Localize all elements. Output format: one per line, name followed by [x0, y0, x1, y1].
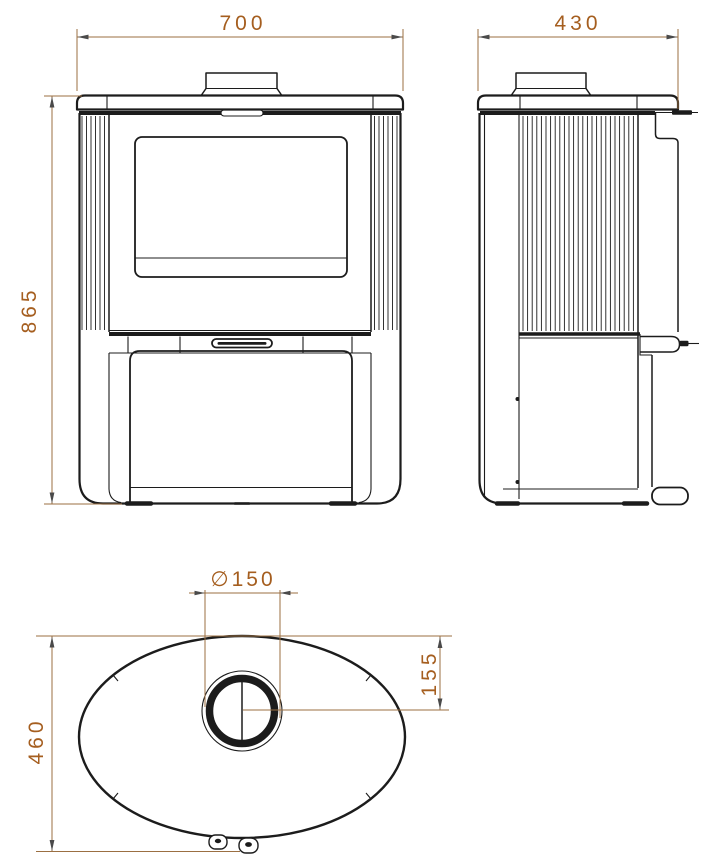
top-plate-side: [478, 96, 678, 114]
ash-door: [127, 351, 355, 504]
glass-window: [135, 137, 347, 277]
dim-label-460: 460: [25, 717, 48, 764]
front-view: [77, 73, 403, 504]
top-view: [79, 636, 405, 853]
dim-label-flue-diameter: ∅150: [210, 568, 275, 591]
dim-label-700: 700: [219, 12, 266, 35]
right-rib-column: [371, 113, 397, 332]
flue-outlet: [202, 671, 282, 751]
base-seams: [109, 353, 371, 503]
top-plate-front: [77, 96, 403, 117]
stove-technical-drawing: 700 430 865 ∅150 155: [0, 0, 720, 867]
dim-width-700: 700: [77, 12, 403, 91]
dim-flue-diameter-150: ∅150: [189, 568, 298, 718]
flue-collar-side: [512, 73, 591, 95]
side-front-foot: [652, 488, 688, 505]
air-control-handle: [218, 342, 267, 345]
side-rib-panel: [519, 115, 640, 488]
dim-height-865: 865: [18, 96, 122, 504]
door-handle-rod: [655, 110, 698, 114]
left-rib-column: [82, 113, 109, 332]
dim-label-155: 155: [418, 649, 441, 696]
seam-bolt-lower: [516, 480, 520, 484]
door-edge-upper: [656, 113, 679, 332]
dimensions: 700 430 865 ∅150 155: [18, 12, 678, 852]
side-body-outline: [480, 113, 646, 504]
top-plate-slot: [221, 110, 263, 116]
flue-collar-front: [202, 73, 282, 95]
latch-bracket: [640, 334, 699, 355]
technical-drawing-canvas: 700 430 865 ∅150 155: [0, 0, 720, 867]
side-view: [478, 73, 699, 505]
dim-label-865: 865: [18, 286, 41, 333]
latch-pin: [680, 341, 689, 346]
dim-label-430: 430: [554, 12, 601, 35]
seam-bolt-upper: [516, 397, 520, 401]
